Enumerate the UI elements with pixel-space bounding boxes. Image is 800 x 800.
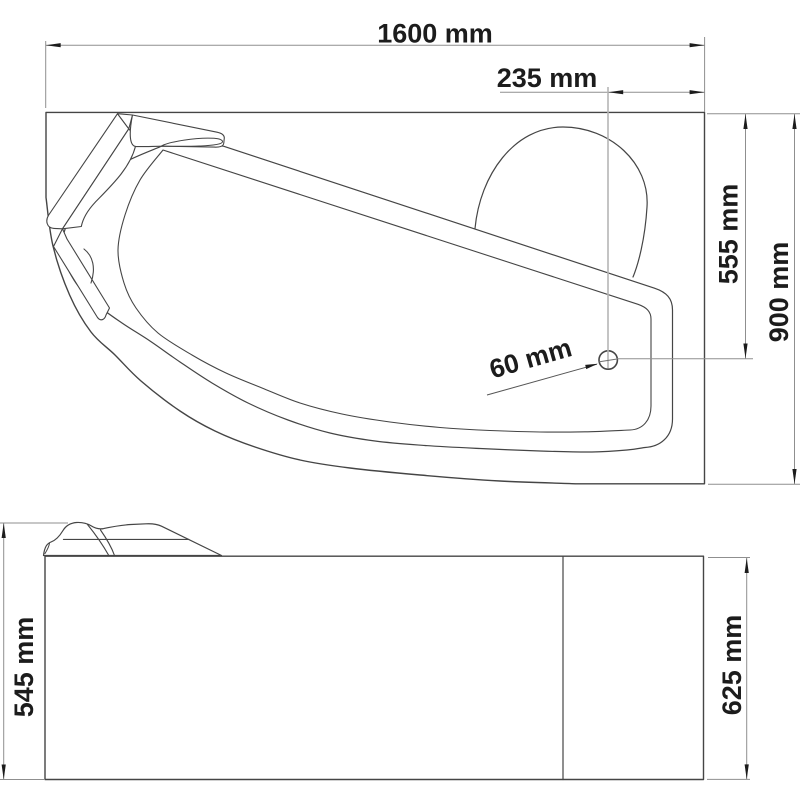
svg-text:545 mm: 545 mm bbox=[9, 617, 39, 718]
svg-text:625 mm: 625 mm bbox=[717, 615, 747, 716]
svg-text:900 mm: 900 mm bbox=[764, 242, 794, 343]
svg-text:235 mm: 235 mm bbox=[497, 63, 598, 93]
svg-text:555 mm: 555 mm bbox=[714, 184, 744, 285]
svg-text:1600 mm: 1600 mm bbox=[377, 19, 493, 49]
